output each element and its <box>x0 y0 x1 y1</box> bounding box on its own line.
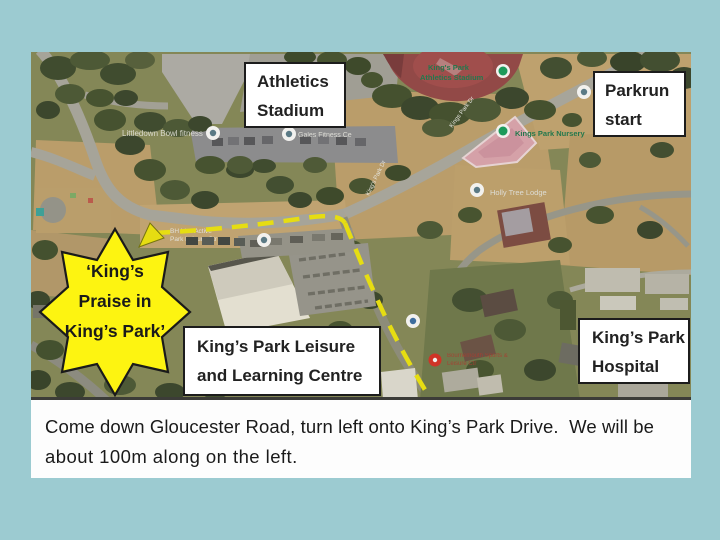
svg-text:King’s Park’: King’s Park’ <box>65 321 166 341</box>
svg-text:Praise in: Praise in <box>79 291 152 311</box>
svg-text:‘King’s: ‘King’s <box>86 261 144 281</box>
